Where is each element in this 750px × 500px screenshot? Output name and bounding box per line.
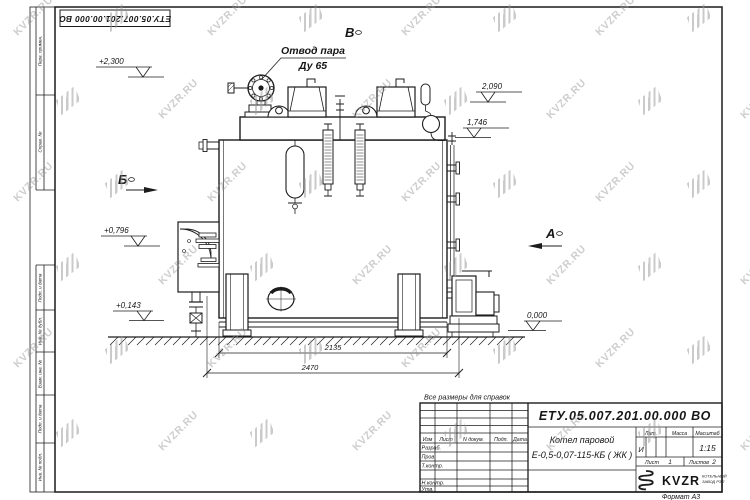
burner-box: [178, 222, 219, 292]
left-wall-stub: [199, 140, 219, 152]
margin-field-podp-data-2: Подп. и дата: [38, 404, 43, 433]
margin-field-vzam-inv: Взам. инв. №: [38, 360, 43, 388]
steam-outlet-valve: [228, 75, 275, 117]
support-leg-rear: [395, 274, 423, 336]
ground-hatch: [110, 337, 523, 345]
reference-note: Все размеры для справок: [424, 393, 511, 402]
boiler-side-view: [108, 75, 525, 345]
top-drum: [240, 117, 445, 140]
margin-field-podp-data-1: Подп. и дата: [38, 273, 43, 302]
masshtab-value: 1:15: [699, 443, 716, 453]
elevation-plus0143: +0,143: [116, 301, 141, 310]
elevation-plus0796: +0,796: [104, 226, 129, 235]
margin-field-sprav-no: Справ. №: [38, 132, 43, 153]
elevation-plus2300: +2,300: [99, 57, 124, 66]
dimension-2135: 2135: [324, 343, 343, 352]
col-data: Дата: [512, 437, 527, 443]
drawing-canvas: ЕТУ.05.007.201.00.000 ВО Перв. примен. С…: [0, 0, 750, 500]
support-leg-front: [223, 274, 251, 336]
elevation-2090: 2,090: [481, 82, 503, 91]
dimension-2470: 2470: [301, 363, 320, 372]
top-stamp-text: ЕТУ.05.007.201.00.000 ВО: [59, 14, 171, 24]
col-podp: Подп.: [494, 437, 508, 443]
elevation-1746: 1,746: [467, 118, 488, 127]
safety-valve-1: [288, 79, 326, 117]
feed-pump-unit: [447, 271, 499, 337]
coil-icon: [639, 471, 653, 489]
svg-text:В: В: [345, 25, 354, 40]
drain-valve: [189, 292, 203, 337]
view-label-v: В: [345, 25, 362, 40]
row-utv: Утв.: [421, 487, 434, 493]
doc-number: ЕТУ.05.007.201.00.000 ВО: [539, 409, 711, 423]
drawing-sheet: ЕТУ.05.007.201.00.000 ВО Перв. примен. С…: [0, 0, 750, 500]
brand-text: KVZR: [662, 474, 700, 488]
list-value: 1: [668, 459, 672, 466]
lit-label: Лит.: [644, 431, 657, 437]
list-label: Лист: [644, 460, 660, 466]
brand-sub2: ЗАВОД РЭП: [702, 479, 725, 484]
view-a-arrow-icon: [528, 243, 542, 249]
kvzr-logo: KVZR КОТЕЛЬНЫЙ ЗАВОД РЭП: [639, 471, 726, 489]
margin-field-inv-dubl: Инв. № дубл.: [38, 317, 43, 345]
view-b-arrow-icon: [144, 187, 158, 193]
safety-valve-2: [377, 79, 415, 117]
view-label-b: Б: [118, 172, 158, 193]
product-name-line2: Е-0,5-0,07-115-КБ ( ЖК ): [532, 450, 633, 460]
col-list: Лист: [438, 437, 453, 443]
listov-value: 2: [711, 459, 716, 466]
col-ndokum: N докум.: [463, 437, 484, 443]
svg-text:А: А: [545, 226, 555, 241]
col-izm: Изм: [423, 437, 433, 443]
product-name-line1: Котел паровой: [550, 435, 615, 445]
svg-text:Б: Б: [118, 172, 127, 187]
margin-field-inv-podl: Инв. № подл.: [38, 453, 43, 482]
brand-sub1: КОТЕЛЬНЫЙ: [702, 474, 727, 479]
callout-du65: Ду 65: [298, 60, 327, 72]
lit-value: И: [638, 445, 644, 454]
margin-field-perv-primen: Перв. примен.: [38, 36, 43, 67]
massa-label: Масса: [672, 431, 687, 437]
row-prov: Пров.: [422, 454, 436, 460]
masshtab-label: Масштаб: [695, 431, 720, 437]
view-label-a: А: [528, 226, 563, 249]
listov-label: Листов: [688, 460, 709, 466]
row-nkontr: Н.контр.: [422, 480, 445, 486]
separator-vessel: [286, 140, 304, 214]
row-razrab: Разраб.: [422, 446, 442, 452]
elevation-0000: 0,000: [527, 311, 548, 320]
title-block: Все размеры для справок ЕТУ.05.007.201.0…: [420, 393, 727, 500]
lifting-lug-2: [355, 106, 377, 117]
format-label: Формат А3: [662, 494, 700, 500]
row-tkontr: Т.контр.: [422, 463, 444, 469]
callout-steam-outlet: Отвод пара: [281, 45, 345, 57]
